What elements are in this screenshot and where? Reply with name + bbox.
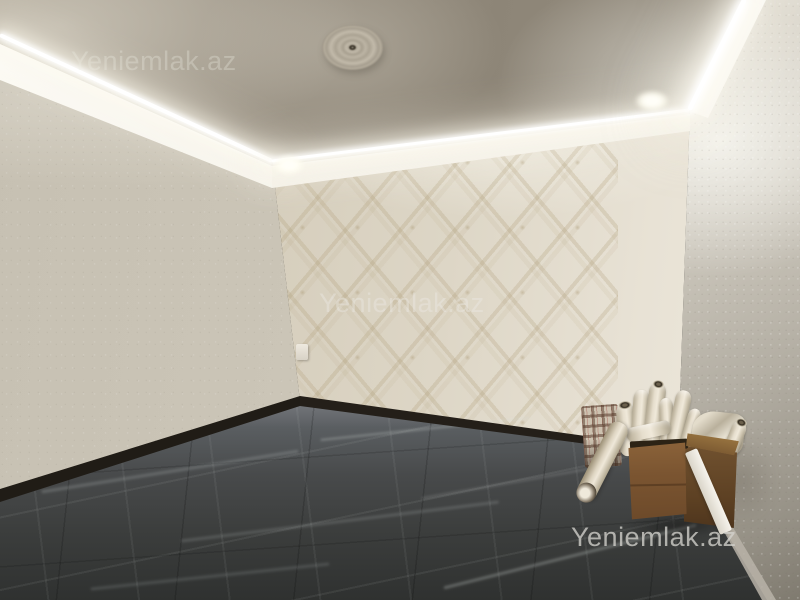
watermark-center: Yeniemlak.az	[319, 288, 485, 319]
recessed-spotlight-left	[268, 152, 310, 178]
cardboard-box	[628, 443, 686, 520]
recessed-spotlight-right	[629, 87, 675, 115]
room-photo: Yeniemlak.az Yeniemlak.az Yeniemlak.az	[0, 0, 800, 600]
watermark-bottom-right: Yeniemlak.az	[571, 522, 737, 553]
roll-core-hole	[652, 380, 665, 389]
light-switch	[296, 344, 308, 360]
box-crease	[629, 484, 686, 487]
roll-core-hole	[618, 400, 632, 409]
ceiling-rosette	[322, 25, 383, 70]
watermark-top-left: Yeniemlak.az	[71, 46, 237, 77]
